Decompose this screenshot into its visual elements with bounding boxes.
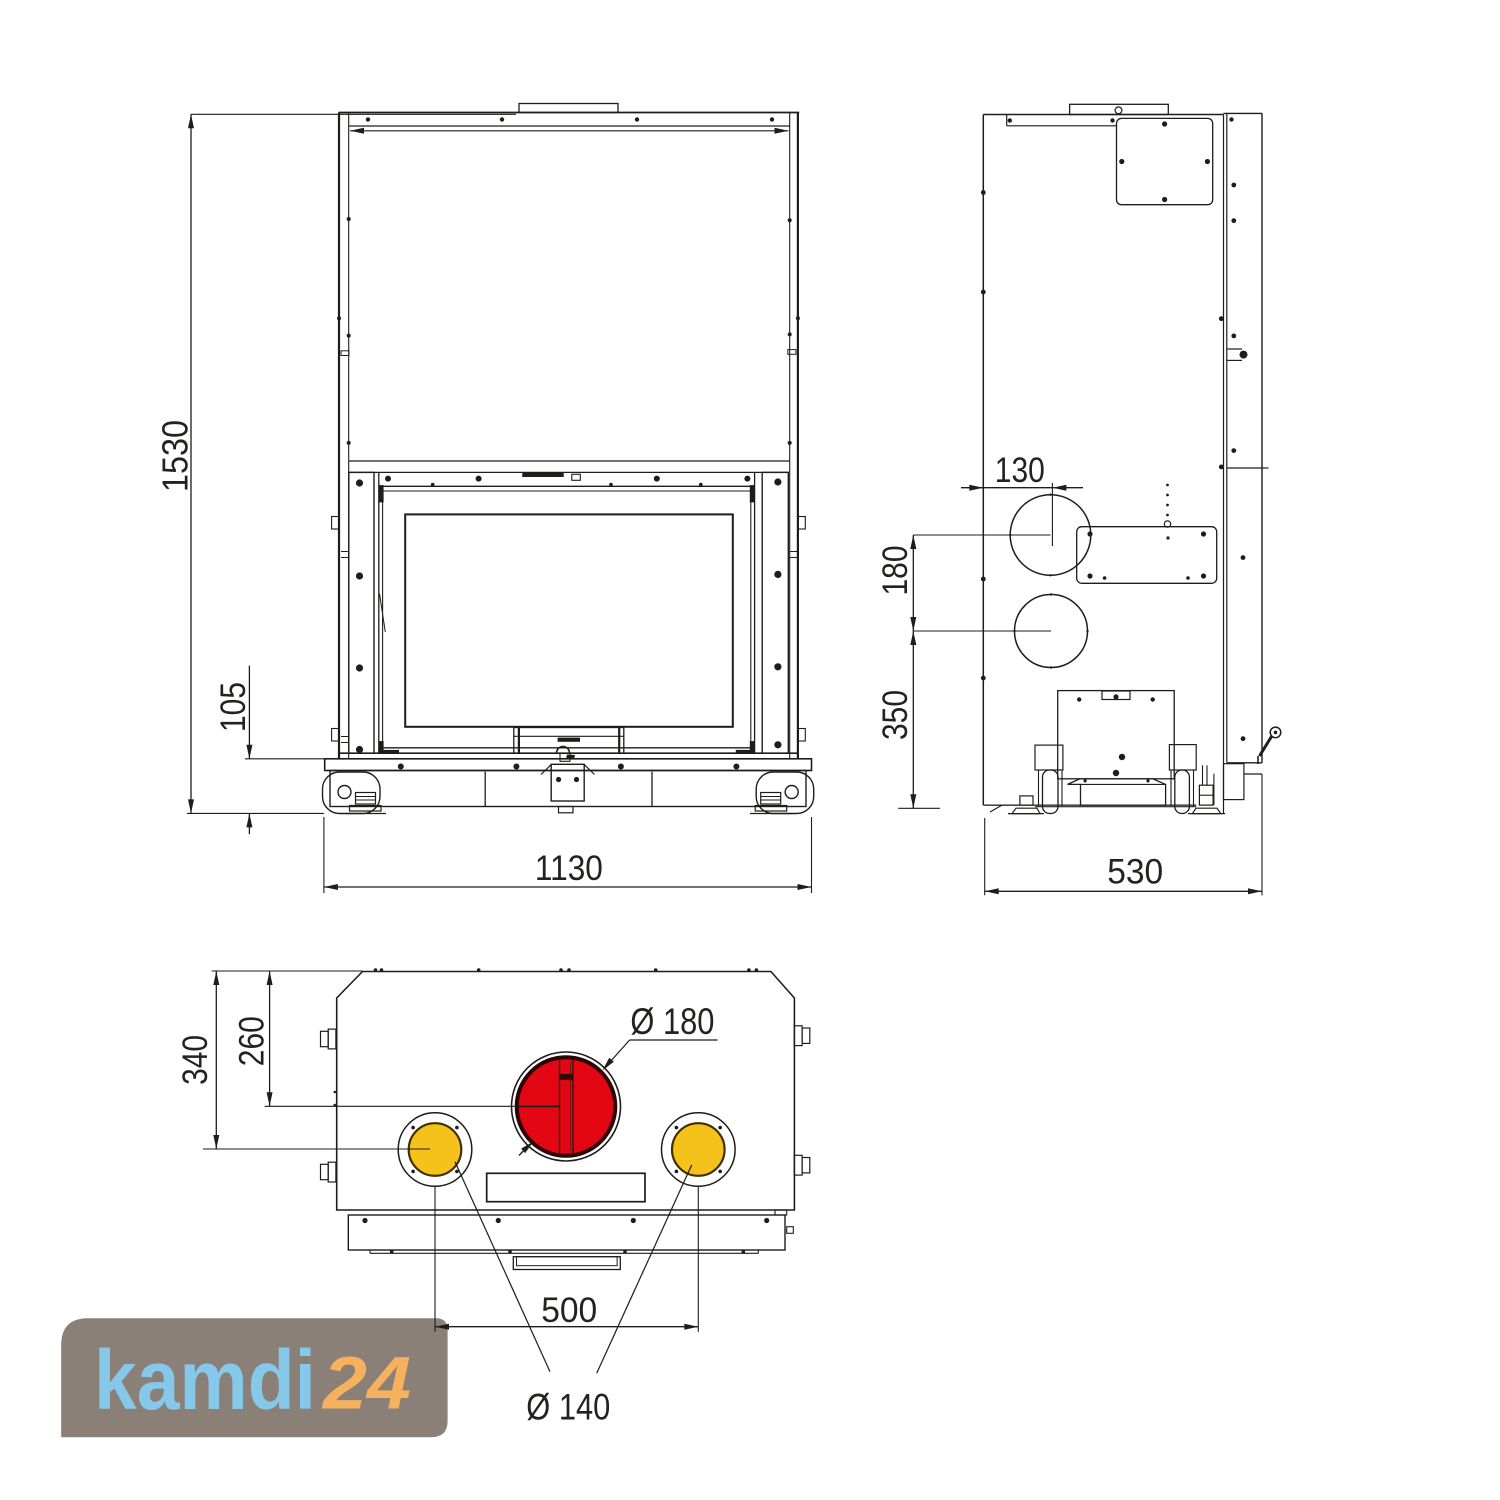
svg-text:1530: 1530 — [154, 420, 195, 492]
svg-text:180: 180 — [876, 546, 915, 596]
svg-text:24: 24 — [321, 1342, 411, 1425]
svg-text:530: 530 — [1107, 853, 1163, 892]
svg-text:130: 130 — [995, 451, 1045, 490]
svg-text:500: 500 — [541, 1291, 597, 1330]
svg-text:Ø 180: Ø 180 — [630, 1001, 714, 1042]
svg-text:260: 260 — [233, 1016, 272, 1066]
svg-text:350: 350 — [876, 690, 915, 740]
svg-text:Ø 140: Ø 140 — [526, 1386, 610, 1427]
svg-text:kamdi: kamdi — [94, 1333, 316, 1427]
svg-text:1130: 1130 — [535, 849, 603, 888]
svg-text:105: 105 — [214, 682, 253, 732]
svg-text:340: 340 — [176, 1035, 215, 1085]
